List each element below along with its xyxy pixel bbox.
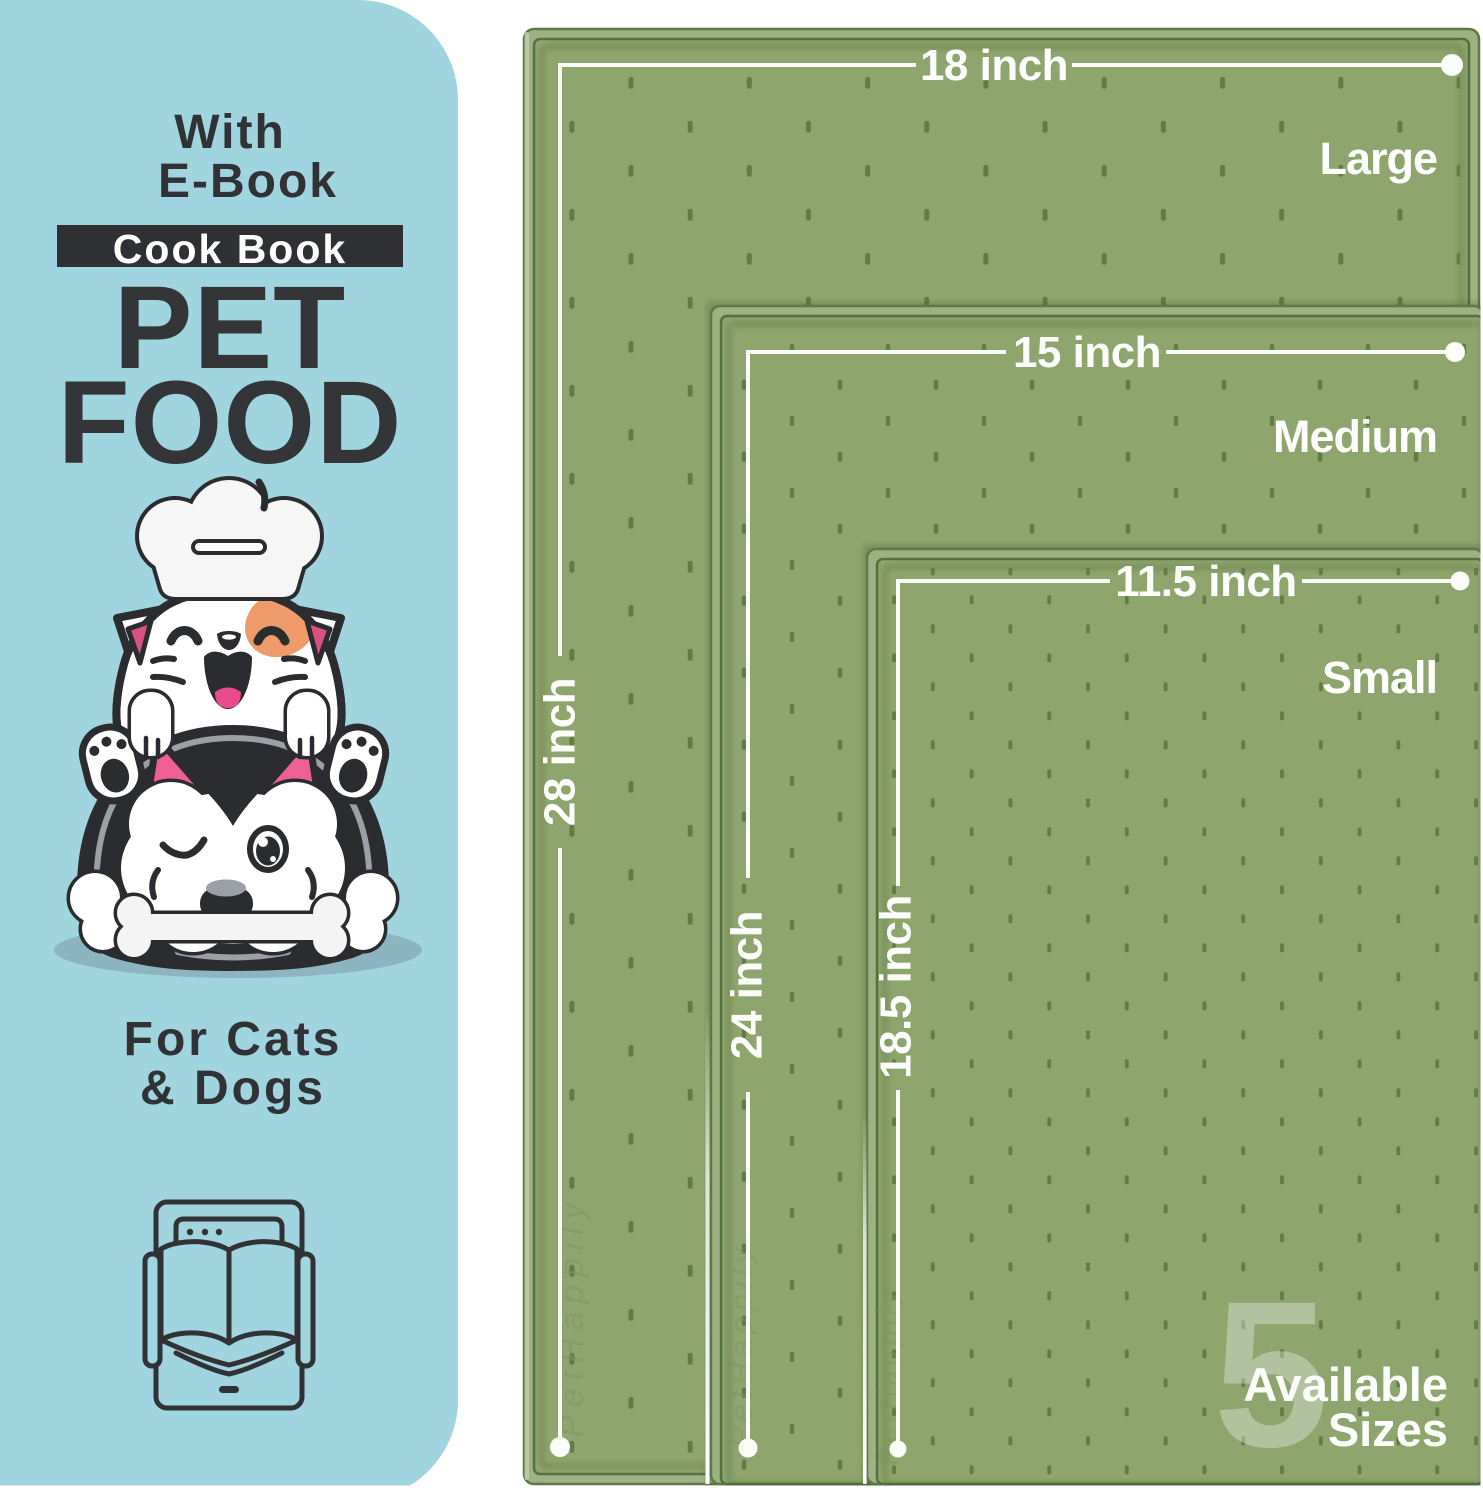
svg-text:Large: Large [1319, 133, 1437, 184]
svg-text:15 inch: 15 inch [1013, 328, 1161, 377]
svg-text:PetHappily: PetHappily [724, 1246, 759, 1449]
svg-text:Medium: Medium [1273, 411, 1437, 462]
svg-text:28 inch: 28 inch [536, 678, 585, 826]
svg-text:18.5 inch: 18.5 inch [872, 895, 921, 1079]
svg-text:Sizes: Sizes [1328, 1403, 1448, 1456]
svg-text:Small: Small [1322, 652, 1437, 703]
svg-text:24 inch: 24 inch [723, 911, 772, 1059]
svg-text:18 inch: 18 inch [920, 41, 1068, 90]
svg-text:11.5 inch: 11.5 inch [1115, 557, 1296, 606]
